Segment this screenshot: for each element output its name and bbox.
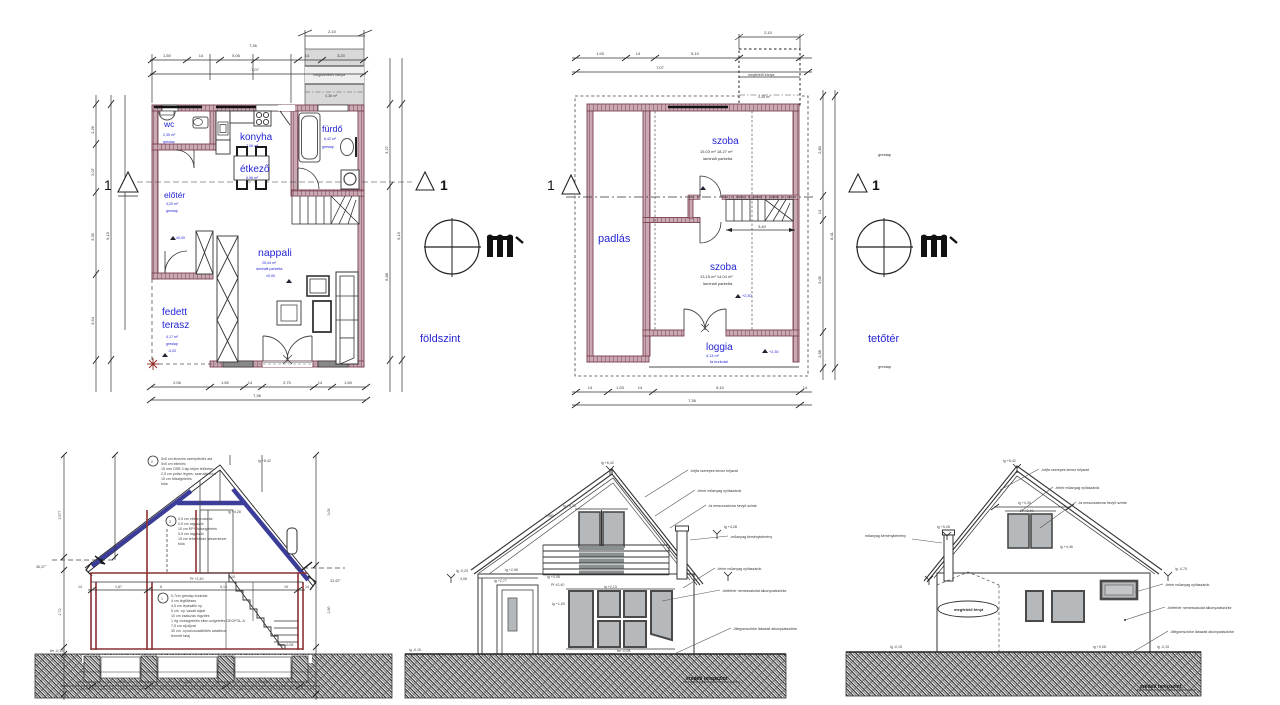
svg-text:ig +4,30: ig +4,30: [563, 504, 576, 508]
svg-text:műanyag kéménykémény: műanyag kéménykémény: [865, 534, 906, 538]
svg-text:ig +4,30: ig +4,30: [1018, 501, 1031, 505]
svg-text:eredeti terepszint: eredeti terepszint: [686, 676, 728, 682]
svg-text:14: 14: [803, 385, 808, 390]
svg-text:13,15 m² 14,04 m²: 13,15 m² 14,04 m²: [700, 274, 733, 279]
svg-text:4,5 cm lépésálló ny.: 4,5 cm lépésálló ny.: [171, 604, 203, 608]
svg-text:termett talaj: termett talaj: [171, 634, 190, 638]
svg-text:greslap: greslap: [166, 209, 178, 213]
svg-text:Pf +2,40: Pf +2,40: [190, 577, 204, 581]
svg-text:5,10: 5,10: [691, 51, 700, 56]
svg-text:7,5 cm alj.aljzat: 7,5 cm alj.aljzat: [171, 624, 196, 628]
svg-text:nappali: nappali: [258, 247, 292, 259]
svg-text:ig -0,20: ig -0,20: [456, 569, 468, 573]
svg-text:5,13: 5,13: [220, 585, 227, 589]
svg-text:2: 2: [151, 460, 153, 464]
svg-text:1,93: 1,93: [596, 51, 605, 56]
svg-text:1 rtg vízszigetelés ellen szig: 1 rtg vízszigetelés ellen szigetelés GEO…: [171, 619, 246, 623]
svg-text:14: 14: [199, 53, 204, 58]
svg-text:ig -0,15: ig -0,15: [890, 645, 902, 649]
svg-text:10 cm zsaluzás rögzítés: 10 cm zsaluzás rögzítés: [171, 614, 210, 618]
svg-text:-műanyag kéménykémény: -műanyag kéménykémény: [730, 535, 772, 539]
svg-text:laminált parketta: laminált parketta: [256, 267, 282, 271]
svg-text:6,42 m²: 6,42 m²: [324, 137, 337, 141]
svg-text:ter -0,08: ter -0,08: [617, 649, 630, 653]
svg-text:1,87: 1,87: [115, 585, 122, 589]
svg-text:-illlegomszürke lábazati alkon: -illlegomszürke lábazati alkonyzatszürke: [1170, 630, 1234, 634]
svg-text:greslap: greslap: [878, 152, 892, 157]
svg-text:2,07: 2,07: [90, 167, 95, 176]
svg-text:2,06: 2,06: [173, 380, 182, 385]
svg-text:2,93: 2,93: [260, 680, 267, 684]
svg-text:2,80: 2,80: [817, 145, 822, 154]
svg-text:2,35 m²: 2,35 m²: [163, 133, 176, 137]
svg-text:14: 14: [305, 53, 310, 58]
svg-text:wc: wc: [163, 119, 175, 129]
svg-text:36,37°: 36,37°: [36, 565, 47, 569]
svg-text:-fa ereszcsatorna hevyít szint: -fa ereszcsatorna hevyít szinte: [1078, 501, 1127, 505]
svg-text:7,07: 7,07: [251, 67, 260, 72]
svg-text:3,27: 3,27: [384, 145, 389, 154]
svg-text:15: 15: [284, 585, 288, 589]
svg-text:4 cm légfűtéses: 4 cm légfűtéses: [171, 599, 196, 603]
svg-text:-héjfa cserepes lemez héjazat: -héjfa cserepes lemez héjazat: [1041, 468, 1089, 472]
svg-text:előtér: előtér: [164, 190, 185, 200]
svg-text:25,44 m²: 25,44 m²: [262, 261, 277, 265]
svg-text:étkező: étkező: [240, 164, 270, 175]
svg-text:7,06 m²: 7,06 m²: [246, 144, 259, 148]
svg-text:33,43°: 33,43°: [330, 579, 341, 583]
svg-text:0,7cm greslap burkolat: 0,7cm greslap burkolat: [171, 594, 207, 598]
svg-text:greslap: greslap: [878, 364, 892, 369]
svg-text:-törtfehér nemesvakolat alkony: -törtfehér nemesvakolat alkonyzatszürke: [722, 589, 787, 593]
svg-text:ter -0,08: ter -0,08: [280, 643, 293, 647]
svg-text:greslap: greslap: [166, 342, 178, 346]
svg-text:1: 1: [161, 597, 163, 601]
svg-text:1,50: 1,50: [344, 380, 353, 385]
svg-text:fólia: fólia: [161, 482, 168, 486]
svg-text:1: 1: [547, 177, 555, 193]
svg-text:greslap: greslap: [163, 140, 175, 144]
svg-text:ig +4,46: ig +4,46: [1060, 545, 1073, 549]
svg-text:10 cm EPS hőszigetelés: 10 cm EPS hőszigetelés: [178, 527, 217, 531]
svg-text:14: 14: [248, 380, 253, 385]
svg-text:3,54: 3,54: [90, 316, 95, 325]
svg-text:ig +2,98: ig +2,98: [505, 568, 518, 572]
svg-text:15 cm hőszigetelés: 15 cm hőszigetelés: [161, 477, 192, 481]
svg-text:5,06: 5,06: [232, 53, 241, 58]
svg-text:2,70: 2,70: [283, 380, 292, 385]
svg-text:konyha: konyha: [240, 132, 273, 143]
svg-text:0,5 cm ragasztó: 0,5 cm ragasztó: [178, 522, 204, 526]
svg-text:1,58: 1,58: [817, 349, 822, 358]
svg-text:8,06 m²: 8,06 m²: [246, 176, 259, 180]
svg-text:-fehér műanyag nyílászárók: -fehér műanyag nyílászárók: [1055, 486, 1100, 490]
svg-text:szoba: szoba: [710, 262, 737, 273]
svg-text:8,41: 8,41: [829, 231, 834, 240]
svg-text:ig +2,13: ig +2,13: [604, 585, 617, 589]
svg-text:15 cm teherhordó falszerkezet: 15 cm teherhordó falszerkezet: [178, 537, 226, 541]
svg-text:fedett: fedett: [162, 307, 187, 318]
svg-text:4,38 m²: 4,38 m²: [758, 95, 771, 99]
svg-text:5 cm -ny. vasalt aljzat: 5 cm -ny. vasalt aljzat: [171, 609, 205, 613]
svg-text:ig -0,15: ig -0,15: [409, 648, 421, 652]
svg-text:8: 8: [160, 585, 162, 589]
svg-text:7,36: 7,36: [253, 393, 262, 398]
svg-text:14: 14: [78, 585, 82, 589]
svg-text:2,07: 2,07: [120, 680, 127, 684]
svg-text:szoba: szoba: [712, 136, 739, 147]
svg-text:1,93: 1,93: [616, 385, 625, 390]
svg-text:tetőtér: tetőtér: [868, 333, 900, 345]
svg-text:6,88: 6,88: [384, 272, 389, 281]
svg-text:-fa ereszcsatorna hevyít szint: -fa ereszcsatorna hevyít szinte: [708, 504, 757, 508]
svg-text:ig -0,15: ig -0,15: [1157, 645, 1169, 649]
svg-text:ig +6,42: ig +6,42: [601, 461, 614, 465]
svg-text:0,5 cm ragasztó: 0,5 cm ragasztó: [178, 532, 204, 536]
svg-text:30 cm -ny.kulcsosaltöltés adal: 30 cm -ny.kulcsosaltöltés adalékos: [171, 629, 226, 633]
svg-text:-törtfehér nemesvakolat alkony: -törtfehér nemesvakolat alkonyzatszürke: [1167, 606, 1232, 610]
svg-text:fólia: fólia: [178, 542, 185, 546]
svg-text:-0,02: -0,02: [168, 349, 176, 353]
svg-text:-fehér műanyag nyílászárók: -fehér műanyag nyílászárók: [697, 489, 742, 493]
svg-text:3,20 m²: 3,20 m²: [166, 202, 179, 206]
svg-text:3,40: 3,40: [758, 224, 767, 229]
svg-text:ig +4,28: ig +4,28: [724, 525, 737, 529]
svg-text:3,10: 3,10: [228, 575, 235, 579]
svg-text:14: 14: [817, 209, 822, 214]
svg-text:7,36: 7,36: [688, 398, 697, 403]
svg-text:1,50: 1,50: [163, 53, 172, 58]
svg-text:ig +2,77: ig +2,77: [494, 579, 507, 583]
svg-text:4,17 m²: 4,17 m²: [166, 335, 179, 339]
svg-text:5x5 cm lécezés cserépfedés alá: 5x5 cm lécezés cserépfedés alá: [161, 457, 212, 461]
svg-text:2,80: 2,80: [327, 607, 331, 614]
svg-text:5x5 cm ellenléc: 5x5 cm ellenléc: [161, 462, 186, 466]
svg-text:4,38 m²: 4,38 m²: [325, 94, 338, 98]
svg-text:laminált parketta: laminált parketta: [703, 156, 733, 161]
svg-text:5,10: 5,10: [716, 385, 725, 390]
svg-text:1: 1: [872, 177, 880, 193]
svg-text:3,05: 3,05: [817, 275, 822, 284]
svg-text:ig +6,42: ig +6,42: [258, 459, 271, 463]
svg-text:-fehér műanyag nyílászárók: -fehér műanyag nyílászárók: [1165, 583, 1210, 587]
svg-text:eredeti terepszint: eredeti terepszint: [1140, 684, 1182, 690]
svg-text:megközelítés iránya: megközelítés iránya: [313, 73, 345, 77]
svg-text:15,03 m² 18,27 m²: 15,03 m² 18,27 m²: [700, 149, 733, 154]
svg-text:3,12: 3,12: [185, 680, 192, 684]
svg-text:7,36: 7,36: [249, 43, 258, 48]
svg-text:terasz: terasz: [162, 320, 189, 331]
svg-text:3,577: 3,577: [58, 511, 62, 520]
svg-text:loggia: loggia: [706, 342, 733, 353]
svg-text:2,72: 2,72: [58, 609, 62, 616]
svg-text:ig +4,28: ig +4,28: [228, 510, 241, 514]
svg-text:4,06: 4,06: [460, 577, 467, 581]
svg-text:ig +1,00: ig +1,00: [552, 602, 565, 606]
svg-text:1,50: 1,50: [221, 380, 230, 385]
svg-text:2,5 cm polisz légrés, szarufák: 2,5 cm polisz légrés, szarufák közt: [161, 472, 216, 476]
svg-text:9,13: 9,13: [105, 231, 110, 240]
svg-text:3: 3: [169, 520, 171, 524]
svg-text:+2,30: +2,30: [742, 294, 752, 298]
svg-text:ig -0,75: ig -0,75: [1175, 567, 1187, 571]
svg-text:3,20: 3,20: [337, 53, 346, 58]
svg-text:+2,30: +2,30: [769, 350, 779, 354]
svg-text:3,05: 3,05: [327, 509, 331, 516]
svg-text:ig +0,08: ig +0,08: [1093, 645, 1106, 649]
svg-text:1: 1: [104, 177, 112, 193]
svg-text:1,26: 1,26: [90, 125, 95, 134]
svg-text:14: 14: [636, 51, 641, 56]
svg-text:1: 1: [440, 177, 448, 193]
svg-text:14: 14: [318, 380, 323, 385]
svg-text:padlás: padlás: [598, 233, 631, 245]
svg-text:Pf ±2,40: Pf ±2,40: [551, 583, 564, 587]
svg-text:-héjfa cserepes lemez héjazat: -héjfa cserepes lemez héjazat: [690, 469, 738, 473]
svg-text:greslap: greslap: [322, 145, 334, 149]
svg-text:ig +0,08: ig +0,08: [547, 575, 560, 579]
svg-text:laminált parketta: laminált parketta: [703, 281, 733, 286]
svg-text:3,35: 3,35: [90, 232, 95, 241]
svg-text:2,10: 2,10: [328, 29, 337, 34]
svg-text:14: 14: [305, 585, 309, 589]
svg-text:7,07: 7,07: [656, 65, 665, 70]
svg-text:fürdő: fürdő: [322, 124, 343, 134]
svg-text:9,13: 9,13: [396, 231, 401, 240]
svg-text:14: 14: [638, 385, 643, 390]
svg-text:4,13 m²: 4,13 m²: [706, 354, 720, 358]
svg-text:1,485: 1,485: [545, 514, 554, 518]
svg-text:megfelelő fényt: megfelelő fényt: [954, 607, 984, 612]
svg-text:ig +6,42: ig +6,42: [1003, 459, 1016, 463]
svg-text:ig +5,28: ig +5,28: [937, 525, 950, 529]
svg-text:2,10: 2,10: [764, 30, 773, 35]
svg-text:-illlegomszürke lábazati alkon: -illlegomszürke lábazati alkonyzatszürke: [733, 627, 797, 631]
svg-text:megfelelő iránya: megfelelő iránya: [748, 73, 774, 77]
svg-text:0,5 cm vékonyvakolat: 0,5 cm vékonyvakolat: [178, 517, 213, 521]
svg-text:-fehér műanyag nyílászárók: -fehér műanyag nyílászárók: [717, 567, 762, 571]
svg-text:földszint: földszint: [420, 333, 460, 345]
svg-text:±0,00: ±0,00: [176, 236, 185, 240]
svg-text:±0,00: ±0,00: [266, 274, 275, 278]
svg-text:14: 14: [588, 385, 593, 390]
svg-text:fa burkolat: fa burkolat: [710, 360, 729, 364]
svg-text:15 mm OSB 3 lap teljes felület: 15 mm OSB 3 lap teljes felületen: [161, 467, 213, 471]
svg-text:ter -0,15: ter -0,15: [50, 649, 63, 653]
